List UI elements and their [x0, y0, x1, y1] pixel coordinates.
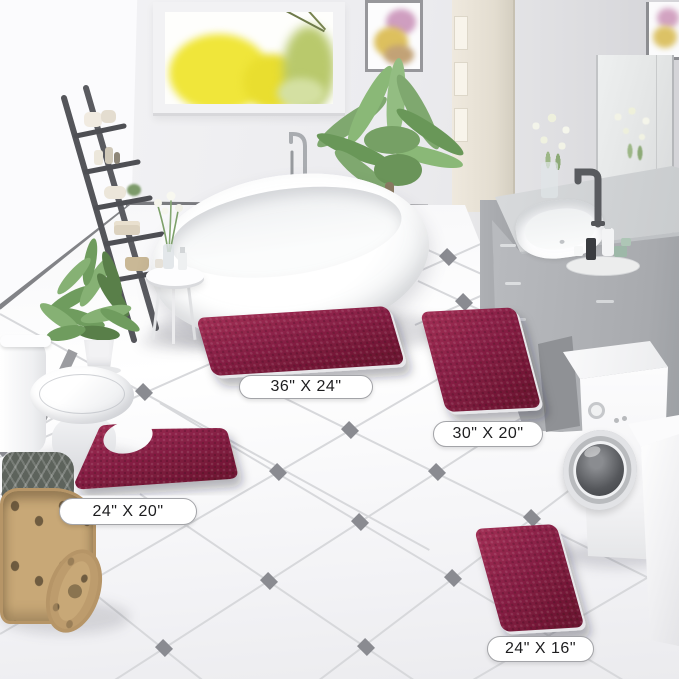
bathroom-product-photo: 36" X 24" 30" X 20" 24" X 20" 24" X 16" — [0, 0, 679, 679]
green-jar — [614, 246, 627, 257]
cosmetic-jar — [155, 259, 163, 268]
storage-cabinet — [452, 0, 515, 212]
pale-bush — [277, 78, 325, 104]
rolled-towel — [104, 186, 126, 199]
lid-center — [66, 582, 84, 600]
window — [153, 2, 345, 116]
size-label-36x24: 36" X 24" — [239, 375, 373, 399]
towel-stack — [114, 221, 140, 235]
wall-art-frame — [365, 0, 423, 72]
soap-bottle — [178, 252, 187, 270]
black-bottle — [586, 238, 596, 260]
drawer-handle — [596, 300, 614, 303]
side-table-top — [146, 266, 204, 286]
washer-knob — [588, 402, 605, 419]
toiletry-tray — [566, 256, 640, 276]
small-basket — [125, 257, 149, 271]
bottle — [105, 147, 113, 164]
greenery — [127, 184, 141, 196]
tile-diamond — [341, 421, 359, 439]
jar — [94, 150, 103, 165]
cabinet-niche — [454, 16, 468, 50]
toilet-seat-line — [39, 374, 125, 414]
white-jar — [574, 246, 583, 256]
washer-button — [622, 416, 627, 421]
bottle — [114, 152, 120, 164]
toilet-seat — [30, 366, 134, 424]
cabinet-niche — [454, 62, 468, 96]
soap-pump — [180, 247, 185, 253]
flower-vase — [163, 244, 174, 269]
lotion-pump — [605, 222, 611, 229]
window-view — [165, 12, 333, 104]
washer-button — [614, 418, 619, 423]
art-flower-pink — [657, 8, 679, 28]
vanity-vase — [541, 162, 558, 198]
side-table-leg — [172, 284, 175, 344]
green-jar — [621, 238, 631, 246]
rolled-towel — [101, 110, 116, 123]
size-label-24x16: 24" X 16" — [487, 636, 594, 662]
mirror-reflected-flowers — [606, 107, 658, 165]
lotion-bottle — [602, 228, 614, 256]
size-label-24x20: 24" X 20" — [59, 498, 197, 525]
art-flower-tan — [384, 45, 414, 65]
drawer-handle — [500, 244, 516, 247]
drawer-handle — [510, 318, 526, 321]
cabinet-niche — [454, 108, 468, 142]
tile-diamond — [455, 293, 473, 311]
drawer-handle — [505, 282, 521, 285]
toilet-tank-lid — [0, 335, 51, 347]
art-flower-yellow — [653, 26, 677, 48]
rolled-towel — [84, 112, 102, 127]
size-label-30x20: 30" X 20" — [433, 421, 543, 447]
wall-art-frame-partial — [646, 2, 679, 60]
